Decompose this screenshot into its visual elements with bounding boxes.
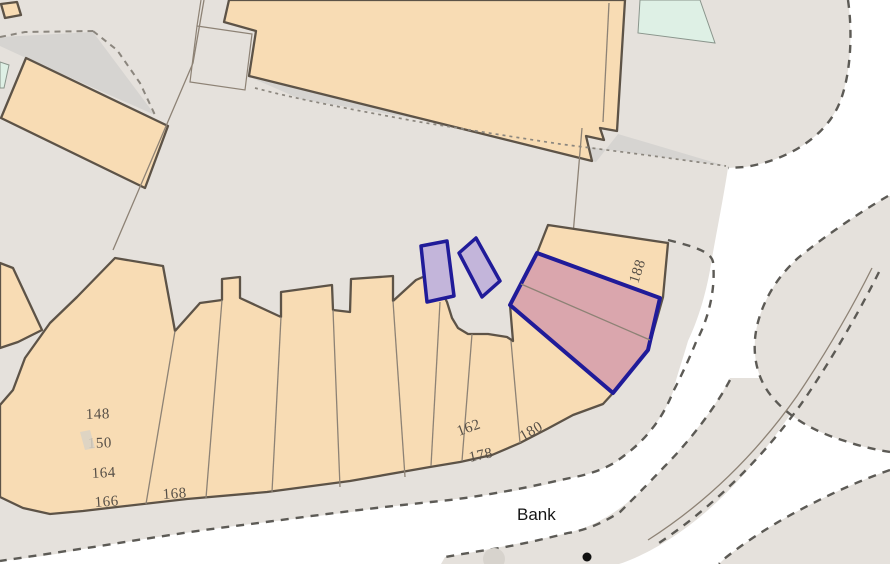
- house-number-label-166: 166: [94, 493, 119, 511]
- map-viewport[interactable]: 148 150 164 166 168 162 178 180 188 Bank: [0, 0, 890, 564]
- point-marker-dot: [583, 553, 592, 562]
- house-number-label-148: 148: [86, 406, 111, 423]
- embankment-band-corner: [719, 470, 890, 564]
- bank-label: Bank: [517, 505, 556, 524]
- house-number-label-164: 164: [91, 465, 116, 482]
- building-corner-fragment[interactable]: [1, 2, 21, 18]
- map-canvas[interactable]: 148 150 164 166 168 162 178 180 188 Bank: [0, 0, 890, 564]
- parcel-highlight-small-1[interactable]: [421, 241, 454, 302]
- house-number-label-168: 168: [162, 485, 187, 503]
